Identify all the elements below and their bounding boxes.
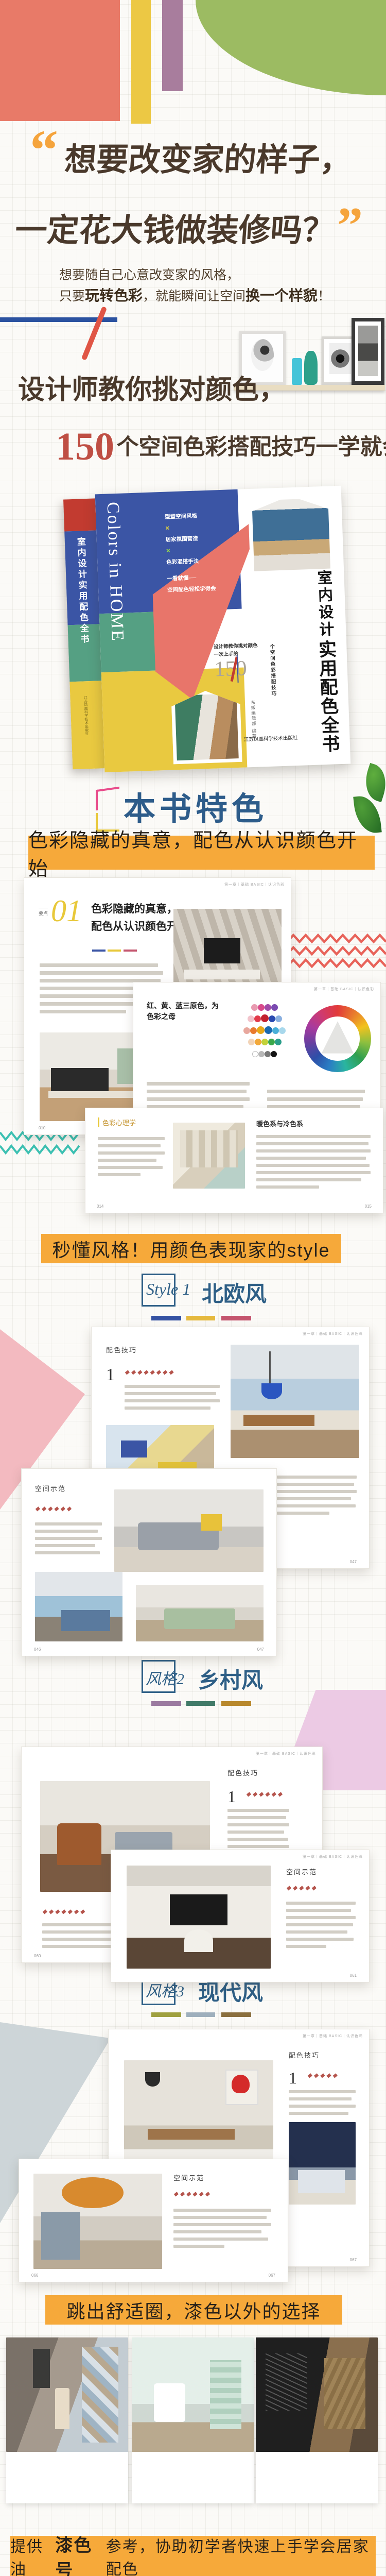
page-number: 047 <box>257 1647 264 1652</box>
psych-label: 色彩心理学 <box>98 1117 136 1127</box>
page-number: 061 <box>350 1973 357 1978</box>
text-block <box>125 1381 220 1414</box>
headline-line2: 一定花大钱做装修吗？ <box>0 205 352 249</box>
cover-feature-1: 型塑空间风格 <box>165 513 197 520</box>
cover-tagline-2: 空间配色轻松学得会 <box>167 586 216 594</box>
warm-cool-heading: 暖色系与冷色系 <box>256 1118 303 1128</box>
spread-page-basics-3: 色彩心理学 暖色系与冷色系 014 015 <box>85 1108 383 1213</box>
demo-label: 空间示范 <box>286 1867 317 1876</box>
cover-subtitle-block: 设计师教你挑对颜色 一次上手的 150 <box>214 641 269 681</box>
item-number: 1 <box>227 1787 236 1806</box>
tri-dash <box>92 945 137 954</box>
count-heading: 150 个空间色彩搭配技巧一学就会！ <box>56 425 386 469</box>
page-number: 046 <box>34 1647 41 1652</box>
skill-label: 配色技巧 <box>227 1768 258 1777</box>
page-number: 014 <box>97 1204 103 1209</box>
material-photo-chalkboard <box>256 2337 378 2452</box>
primary-colors-heading: 红、黄、蓝三原色，为色彩之母 <box>147 1001 224 1023</box>
decor-green-quarter <box>196 0 386 95</box>
page-number: 067 <box>269 2273 275 2278</box>
cover-photo-top <box>248 495 334 575</box>
photo-nordic-dining <box>231 1345 359 1458</box>
text-block <box>256 1131 371 1193</box>
page-number: 047 <box>350 1560 357 1564</box>
sub-line2-bold1: 玩转色彩 <box>85 288 143 304</box>
spread-page-nordic-2: 空间示范 ◆ ◆ ◆ ◆ ◆ ◆ 046 047 <box>21 1468 277 1656</box>
color-pyramid <box>226 1003 303 1061</box>
chapter-header: 第一章｜基础 BASIC｜认识色彩 <box>303 2033 363 2039</box>
cover-feature-2: 居家氛围营造 <box>165 535 198 543</box>
photo-fireplace <box>127 1866 271 1969</box>
material-card: Material 2壁纸 借风格迥异的壁纸区分公私区域 <box>132 2337 254 2503</box>
page-number: 010 <box>39 1126 45 1130</box>
color-wheel <box>304 1005 371 1072</box>
cover-title-line1: 室内设计 <box>315 569 334 638</box>
page-number: 066 <box>31 2273 38 2278</box>
photo-shelving <box>173 1123 245 1189</box>
count-rest: 个空间色彩搭配技巧一学就会！ <box>116 435 386 460</box>
demo-label: 空间示范 <box>35 1483 66 1493</box>
photo-navy-bedroom <box>289 2122 356 2205</box>
spread-page-modern-2: 空间示范 ◆ ◆ ◆ ◆ ◆ ◆ 066 067 <box>19 2159 288 2282</box>
chapter-header: 第一章｜基础 BASIC｜认识色彩 <box>224 882 285 887</box>
features-title: 本书特色 <box>108 785 283 826</box>
cover-x-icon: ✕ <box>166 548 170 554</box>
material-card: Material3 黑板漆 统一材质用色，简化视觉效果 <box>256 2337 378 2503</box>
decor-red-slash <box>81 306 107 361</box>
sub-line2-end: ！ <box>318 290 330 303</box>
sub-line1: 想要随自己心意改变家的风格， <box>59 265 239 283</box>
cover-150: 150 <box>214 658 247 681</box>
item-heading: ◆ ◆ ◆ ◆ ◆ ◆ ◆ ◆ <box>125 1368 217 1376</box>
item-number: 1 <box>289 2069 297 2088</box>
banner-paint-codes: 提供油漆色号参考，协助初学者快速上手学会居家配色 <box>10 2536 376 2576</box>
chapter-header: 第一章｜基础 BASIC｜认识色彩 <box>303 1331 363 1336</box>
point-number: 01 <box>51 893 82 929</box>
style2-label: 风格2 <box>146 1666 184 1689</box>
text-block <box>289 2086 356 2119</box>
style1-bars <box>151 1314 251 1323</box>
demo-caption: ◆ ◆ ◆ ◆ ◆ <box>286 1884 353 1892</box>
material-photo-tiles <box>6 2337 128 2452</box>
banner-materials: 跳出舒适圈，漆色以外的选择 <box>45 2295 342 2325</box>
book-front-cover: Colors in HOME 型塑空间风格 ✕ 居家氛围营造 ✕ 色彩混搭手法 … <box>95 486 351 772</box>
text-block <box>277 1471 357 1519</box>
spread-page-country-2: 第一章｜基础 BASIC｜认识色彩 空间示范 ◆ ◆ ◆ ◆ ◆ 061 <box>111 1850 370 1982</box>
style2-name: 乡村风 <box>198 1663 263 1694</box>
skill-label: 配色技巧 <box>289 2050 320 2060</box>
style1-label: Style 1 <box>146 1280 190 1299</box>
demo-label: 空间示范 <box>173 2173 204 2182</box>
text-block <box>286 1897 356 1952</box>
item-number: 1 <box>106 1365 115 1385</box>
book-hero: 室内设计实用配色全书 江苏凤凰科学技术出版社 Colors in HOME 型塑… <box>63 486 351 774</box>
cover-main-title: 室内设计 实用配色全书 <box>310 569 343 759</box>
zigzag-red-icon <box>287 934 386 972</box>
sub-line2-mid: ，就能瞬间让空间 <box>143 290 245 303</box>
text-block <box>173 2205 271 2252</box>
country-intro-label: ◆ ◆ ◆ ◆ ◆ ◆ ◆ <box>42 1908 85 1916</box>
banner-paint-pre: 提供油 <box>10 2534 55 2576</box>
skill-label: 配色技巧 <box>106 1345 137 1354</box>
material-photo-wallpaper <box>132 2337 254 2452</box>
designer-heading: 设计师教你挑对颜色， <box>18 368 286 406</box>
style3-bars <box>151 2010 251 2020</box>
count-number: 150 <box>56 425 114 468</box>
sub-line2: 只要玩转色彩，就能瞬间让空间换一个样貌！ <box>59 284 330 305</box>
style2-bars <box>151 1699 251 1708</box>
product-detail-page: “ 想要改变家的样子， 一定花大钱做装修吗？ ” 想要随自己心意改变家的风格， … <box>0 0 386 2576</box>
vase-green <box>304 351 318 385</box>
cover-x-icon: ✕ <box>165 525 170 531</box>
photo-green-sofa <box>136 1585 264 1641</box>
headline-line1: 想要改变家的样子， <box>29 135 386 178</box>
decor-yellow-bar <box>131 0 151 124</box>
banner-feature-1: 色彩隐藏的真意，配色从认识颜色开始 <box>28 836 375 870</box>
cover-publisher: 江苏凤凰科学技术出版社 <box>244 734 298 743</box>
sub-line2-pre: 只要 <box>59 290 85 303</box>
cover-title-line2: 实用配色全书 <box>316 639 340 754</box>
picture-frame-3 <box>352 318 384 385</box>
demo-caption: ◆ ◆ ◆ ◆ ◆ ◆ <box>173 2190 245 2198</box>
item-heading: ◆ ◆ ◆ ◆ ◆ <box>307 2072 364 2079</box>
photo-blue-bedroom <box>35 1572 122 1641</box>
page-number: 060 <box>34 1954 41 1958</box>
decor-purple-bar <box>162 0 183 91</box>
photo-orange-ceiling <box>33 2174 162 2269</box>
style1-name: 北欧风 <box>202 1277 267 1308</box>
banner-paint-bold: 漆色号 <box>55 2531 106 2576</box>
cover-tagline-1: 一看就懂── <box>167 575 196 582</box>
sub-line2-bold2: 换一个样貌 <box>245 288 318 304</box>
demo-caption: ◆ ◆ ◆ ◆ ◆ ◆ <box>35 1505 97 1513</box>
jar-teal <box>292 358 302 385</box>
item-heading: ◆ ◆ ◆ ◆ ◆ ◆ <box>246 1790 313 1798</box>
chapter-header: 第一章｜基础 BASIC｜认识色彩 <box>303 1854 363 1859</box>
chapter-header: 第一章｜基础 BASIC｜认识色彩 <box>314 987 374 992</box>
material-card: Material 1花砖 <box>6 2337 128 2503</box>
photo-gray-sofa <box>114 1489 264 1572</box>
cover-subtitle-3: 个空间色彩搭配技巧 <box>268 644 277 697</box>
page-number: 067 <box>350 2258 357 2262</box>
chapter-header: 第一章｜基础 BASIC｜认识色彩 <box>256 1751 316 1756</box>
cover-author: 东贩编辑部 编著 <box>250 700 258 739</box>
banner-styles: 秒懂风格！用颜色表现家的style <box>41 1234 341 1263</box>
page-number: 015 <box>365 1204 372 1209</box>
cover-feature-3: 色彩混搭手法 <box>166 558 199 565</box>
banner-paint-post: 参考，协助初学者快速上手学会居家配色 <box>106 2534 376 2576</box>
decor-coral-block <box>0 0 120 121</box>
text-block <box>35 1518 102 1558</box>
point-label: 要点 <box>39 908 48 917</box>
cover-feature-list: 型塑空间风格 ✕ 居家氛围营造 ✕ 色彩混搭手法 一看就懂── 空间配色轻松学得… <box>165 509 234 596</box>
close-quote-icon: ” <box>337 200 363 251</box>
text-block <box>98 1133 165 1180</box>
